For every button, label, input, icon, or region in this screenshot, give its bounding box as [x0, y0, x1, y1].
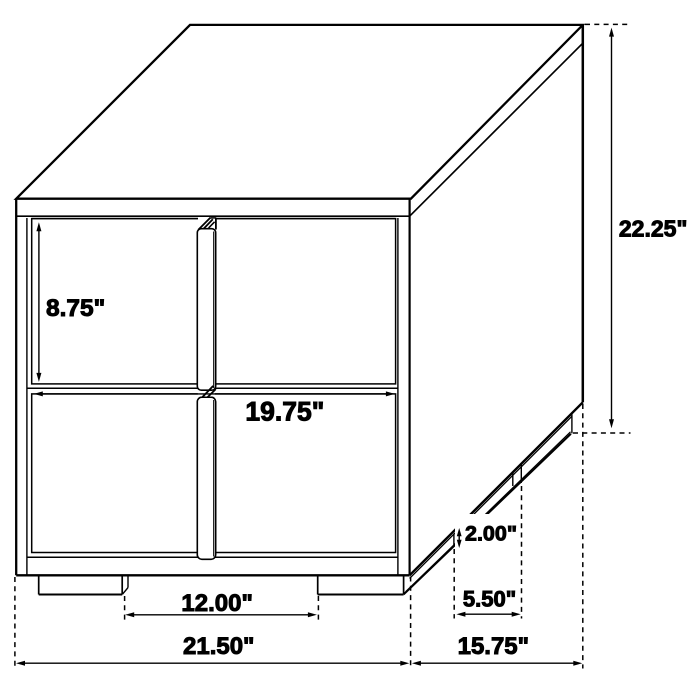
svg-text:5.50": 5.50"	[463, 586, 516, 611]
svg-text:22.25": 22.25"	[619, 216, 687, 242]
svg-text:12.00": 12.00"	[181, 590, 252, 617]
svg-text:15.75": 15.75"	[458, 633, 529, 660]
svg-text:2.00": 2.00"	[465, 522, 517, 546]
svg-text:19.75": 19.75"	[245, 397, 324, 427]
svg-text:8.75": 8.75"	[46, 295, 105, 322]
svg-text:21.50": 21.50"	[183, 633, 254, 660]
